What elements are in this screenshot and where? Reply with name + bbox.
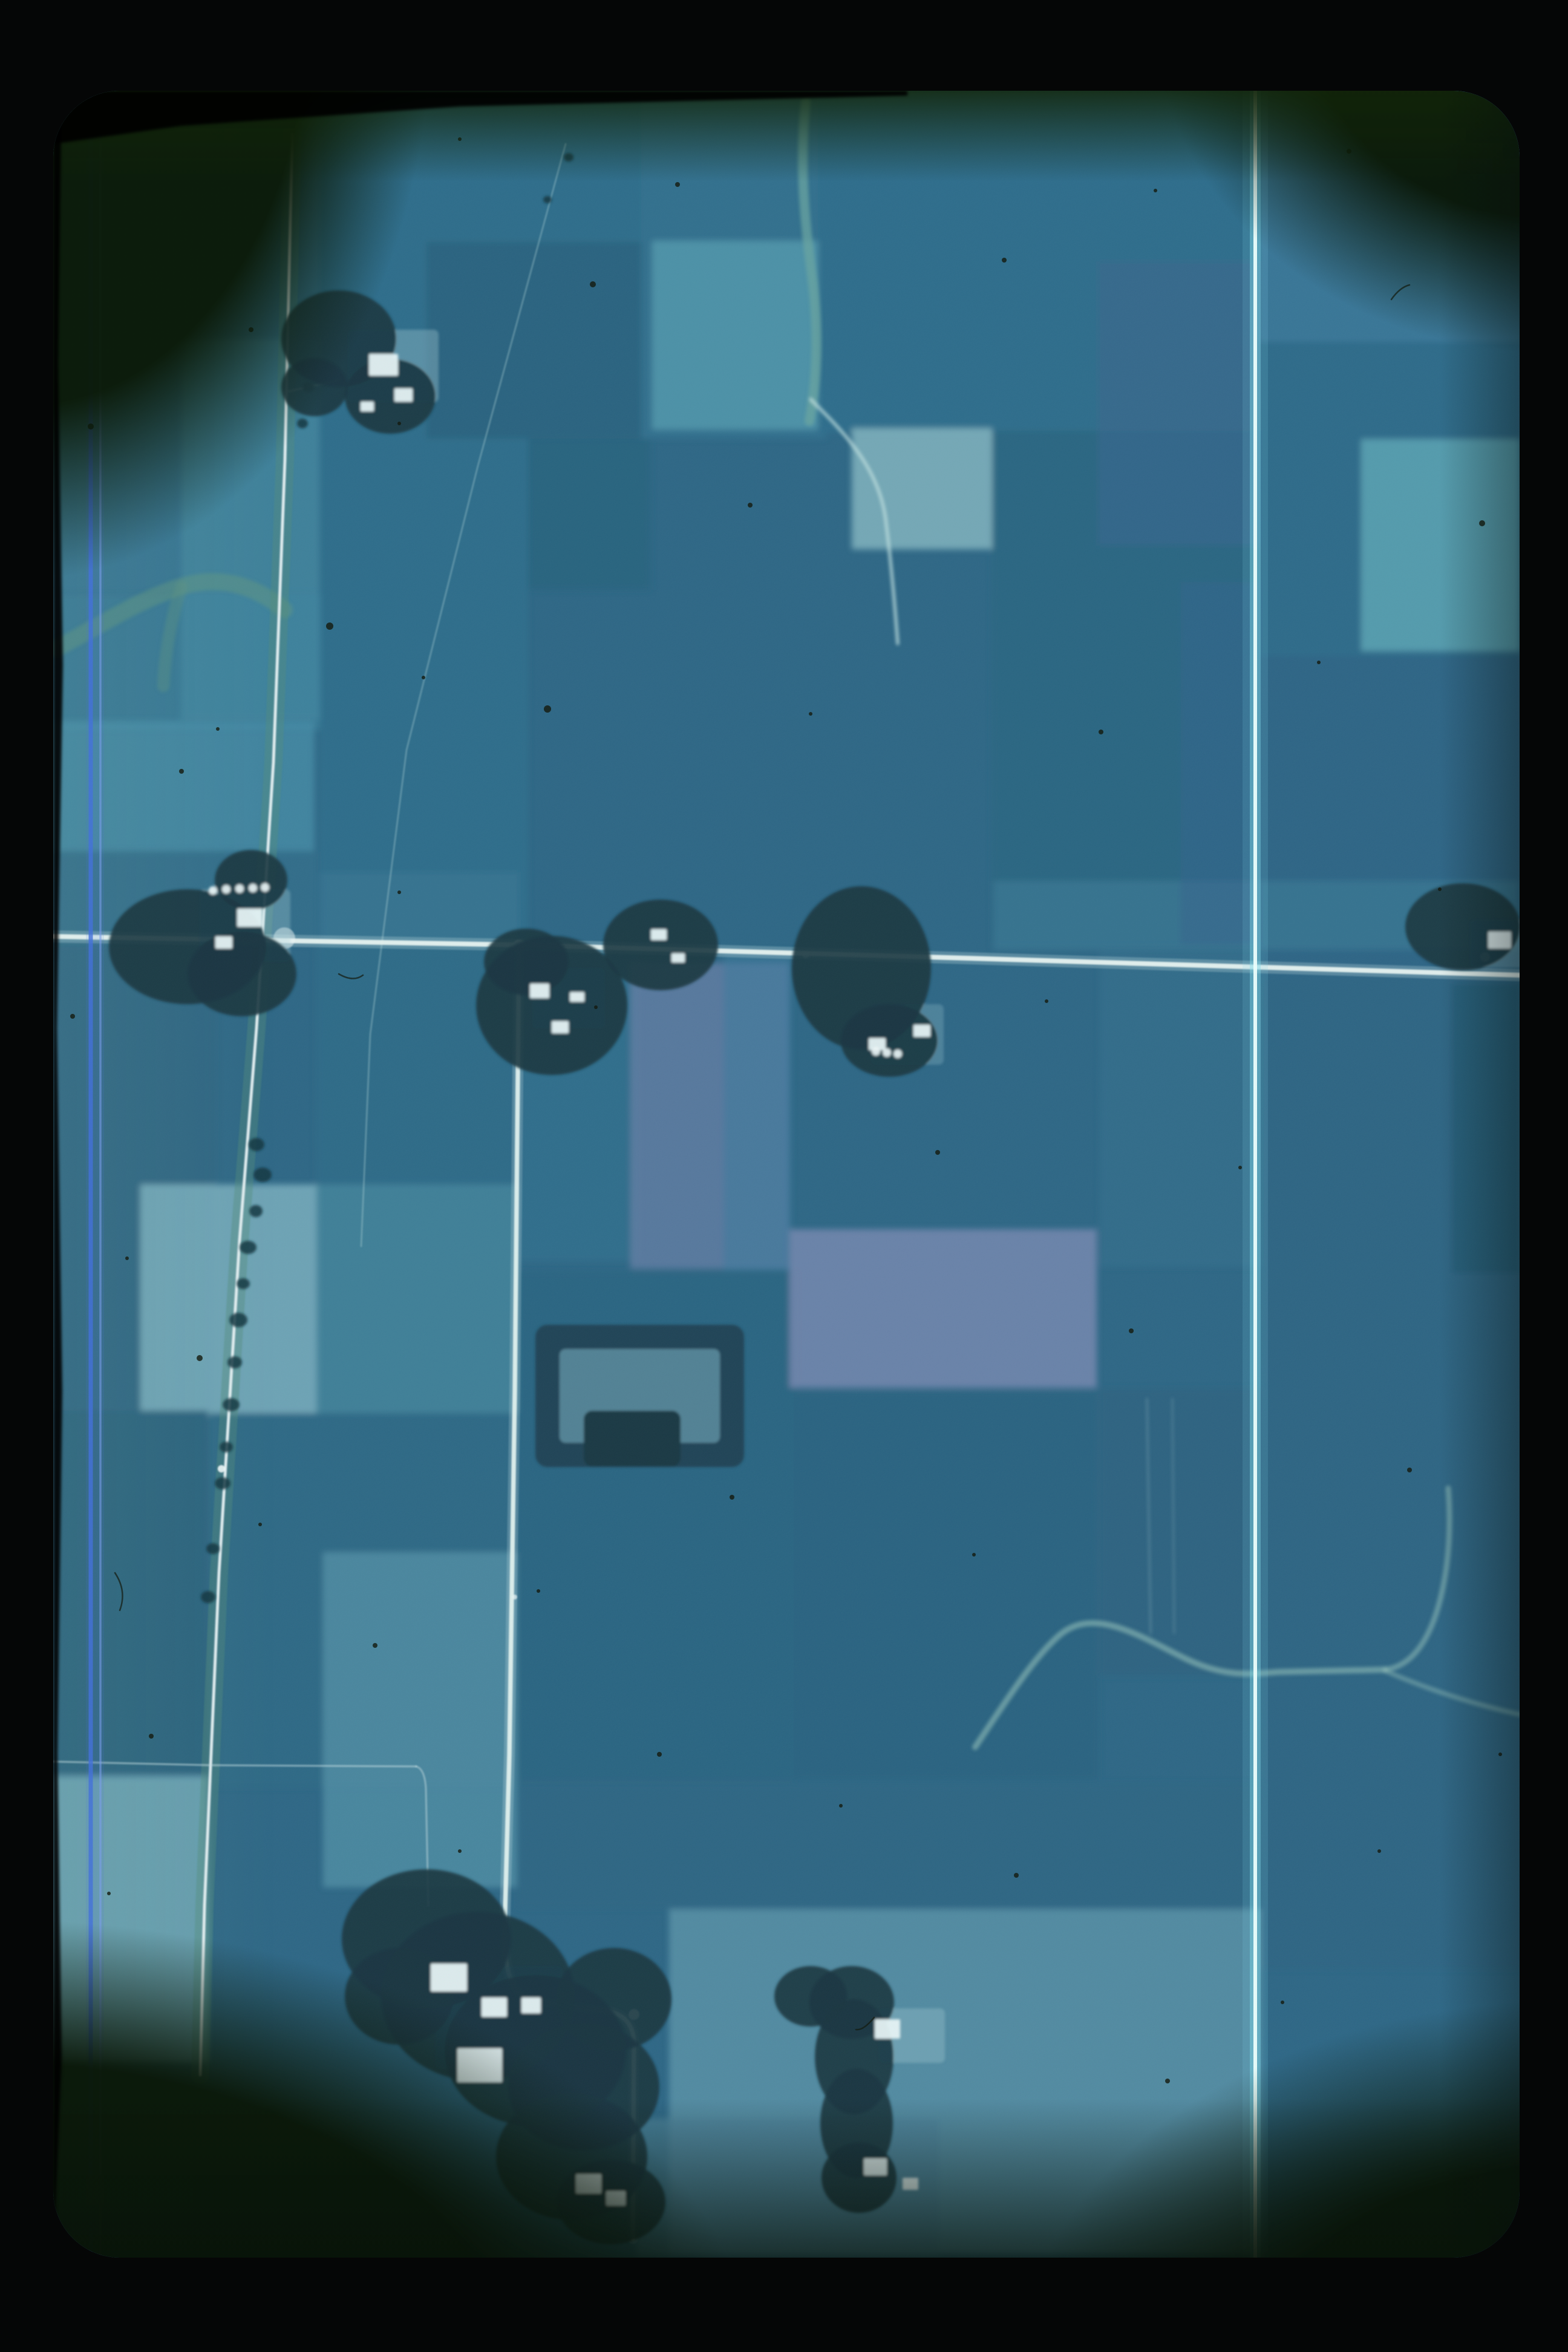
film-frame bbox=[0, 0, 1568, 2352]
aerial-photo-slide bbox=[0, 0, 1568, 2352]
